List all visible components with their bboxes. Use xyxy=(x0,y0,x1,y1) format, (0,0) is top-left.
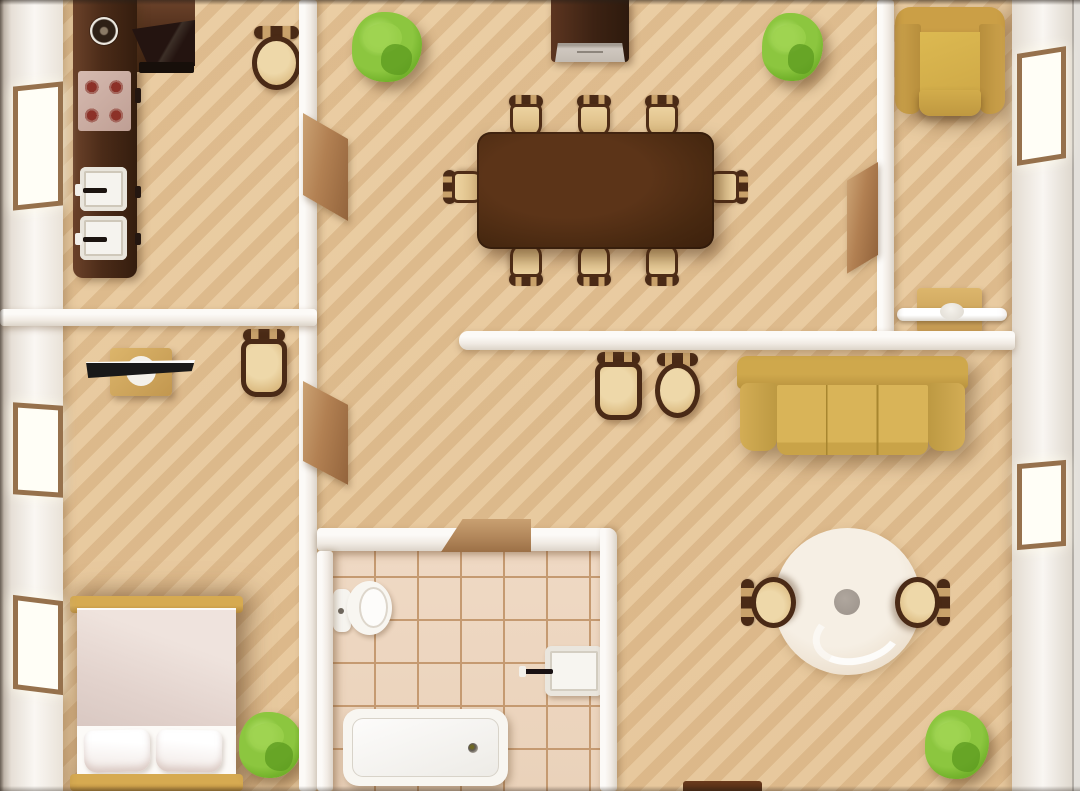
kitchen-stool xyxy=(249,26,304,92)
toilet-bowl xyxy=(347,581,392,635)
kitchen-handle-1 xyxy=(135,88,141,103)
sofa-cushions xyxy=(777,385,928,455)
floor-plan xyxy=(0,0,1080,791)
rug-chair-left xyxy=(741,574,798,631)
living-stool-square xyxy=(592,352,645,422)
armchair-front-cushion xyxy=(919,90,981,116)
bathtub xyxy=(343,709,508,786)
door-bathroom xyxy=(441,519,531,552)
dining-table xyxy=(477,132,714,249)
tv-desk xyxy=(86,344,196,397)
plant-dining-left xyxy=(352,12,422,82)
edge-shadow-top xyxy=(0,0,1080,5)
edge-shadow-bottom xyxy=(0,786,1080,791)
window-right-top xyxy=(1017,46,1066,166)
toilet xyxy=(333,580,392,638)
sofa-arm-right xyxy=(928,383,965,451)
edge-shadow-left xyxy=(0,0,4,791)
rug-chair-right xyxy=(893,574,950,631)
window-left-bedroom-1 xyxy=(13,402,63,497)
plant-living xyxy=(925,710,989,779)
window-right-living xyxy=(1017,460,1066,550)
kitchen-handle-2 xyxy=(135,186,141,198)
kitchen-appliance-bar xyxy=(139,62,194,73)
bed xyxy=(70,594,243,791)
kitchen-sink-upper xyxy=(80,167,127,211)
bed-pillow-right xyxy=(156,729,223,772)
plant-bedroom xyxy=(239,712,302,778)
window-left-bedroom-2 xyxy=(13,595,63,695)
plant-dining-right xyxy=(762,13,823,81)
wall-kitchen-bottom xyxy=(0,309,317,326)
dining-cabinet-front xyxy=(555,43,625,62)
kitchen-pot xyxy=(90,17,118,45)
armchair-seat xyxy=(920,32,980,96)
bed-pillow-left xyxy=(83,729,150,773)
bathroom-sink xyxy=(545,646,603,696)
armchair xyxy=(895,7,1005,119)
wall-outer-right-edge xyxy=(1072,0,1080,791)
dining-cabinet xyxy=(551,0,629,62)
console xyxy=(897,287,1007,334)
door-top-right-room xyxy=(847,162,878,274)
wall-dining-right xyxy=(877,0,894,350)
kitchen-stove xyxy=(78,71,131,131)
sofa-arm-left xyxy=(740,383,777,451)
wall-bath-left xyxy=(317,551,333,791)
window-left-kitchen xyxy=(13,81,63,210)
console-knob xyxy=(940,303,964,320)
armchair-arm-right xyxy=(979,24,1005,114)
rug-center-table xyxy=(834,589,860,615)
living-stool-round xyxy=(652,353,703,420)
wall-living-top xyxy=(459,331,1015,350)
kitchen-handle-3 xyxy=(135,233,141,245)
armchair-arm-left xyxy=(895,24,921,114)
kitchen-sink-lower xyxy=(80,216,127,260)
wall-bath-right xyxy=(600,528,617,791)
sofa xyxy=(737,356,968,457)
bed-blanket xyxy=(77,610,236,726)
desk-chair xyxy=(238,329,290,399)
